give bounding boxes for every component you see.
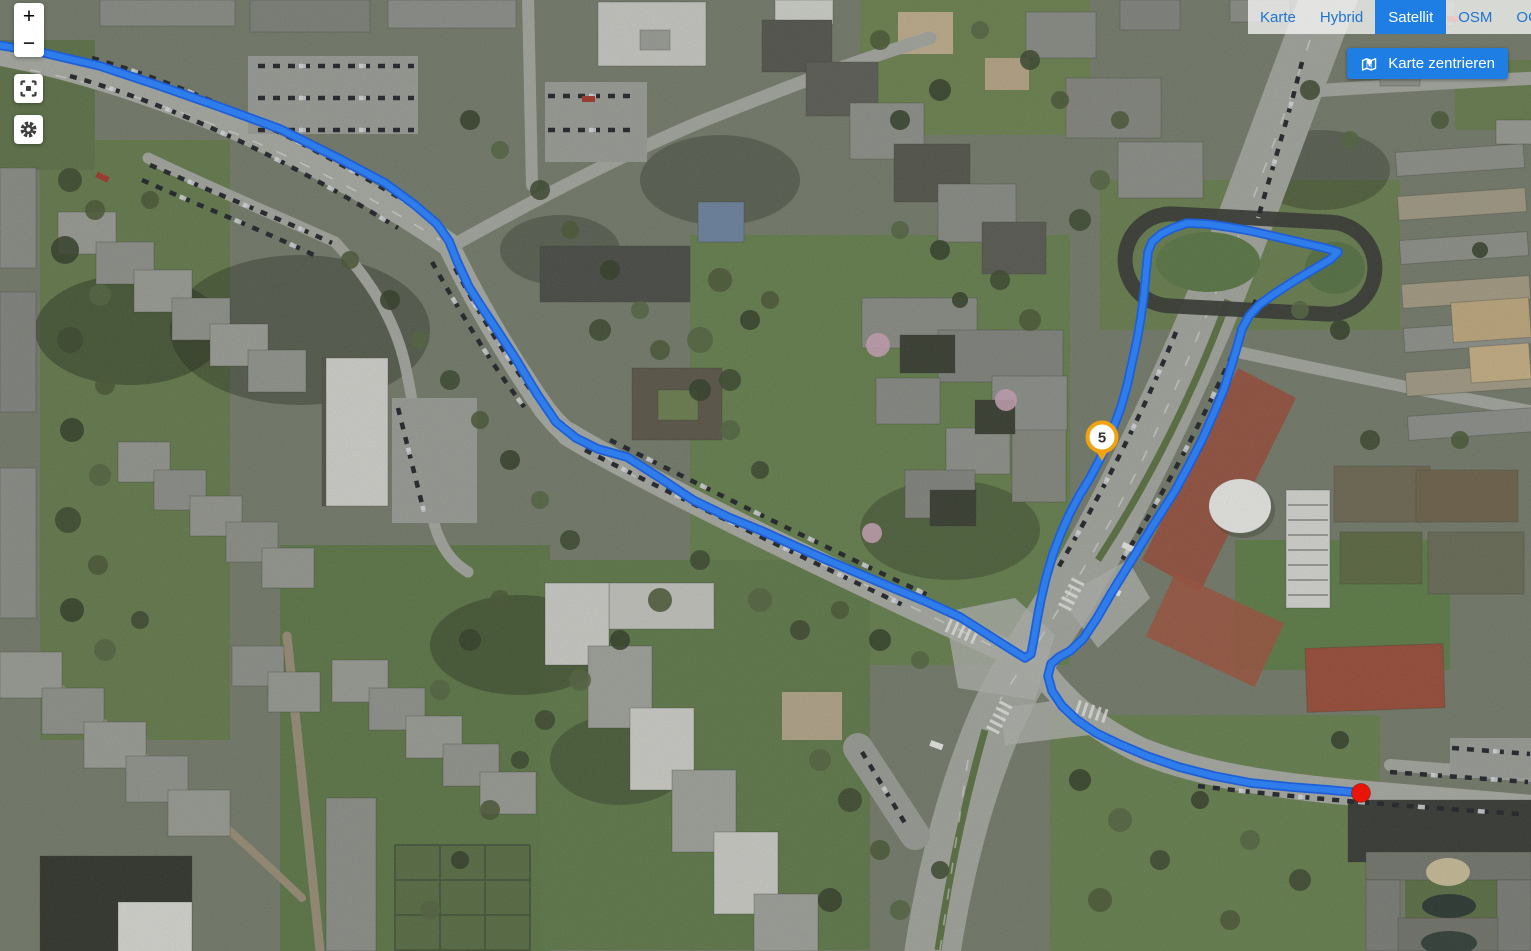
layer-option-karte[interactable]: Karte [1248, 0, 1308, 34]
layer-option-hybrid[interactable]: Hybrid [1308, 0, 1375, 34]
settings-button[interactable] [14, 115, 43, 144]
center-map-label: Karte zentrieren [1388, 55, 1495, 72]
zoom-out-button[interactable]: − [14, 30, 44, 57]
map-pin-icon [1360, 55, 1379, 73]
layer-option-osm[interactable]: OSM [1446, 0, 1504, 34]
zoom-in-button[interactable]: + [14, 3, 44, 30]
layer-switcher: KarteHybridSatellitOSMOCM [1248, 0, 1531, 34]
marker-label: 5 [1098, 430, 1106, 447]
gear-icon [18, 119, 39, 140]
satellite-imagery [0, 0, 1531, 951]
center-map-button[interactable]: Karte zentrieren [1347, 48, 1508, 79]
layer-option-satellit[interactable]: Satellit [1375, 0, 1446, 34]
zoom-control: + − [14, 3, 44, 57]
map-canvas[interactable]: 5 [0, 0, 1531, 951]
track-endpoint [1352, 784, 1371, 803]
fullscreen-icon [18, 78, 39, 99]
map-application: 5 + − KarteHybridSatellitOSMOCM Kart [0, 0, 1531, 951]
fullscreen-button[interactable] [14, 74, 43, 103]
layer-option-ocm[interactable]: OCM [1504, 0, 1531, 34]
